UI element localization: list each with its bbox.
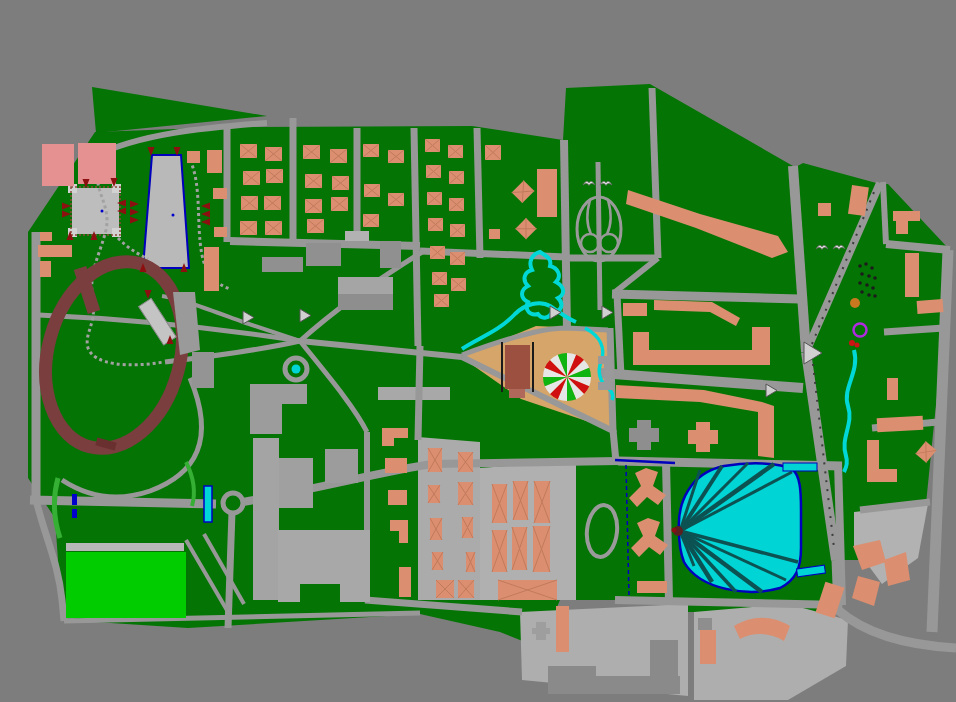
- villa: [399, 567, 411, 597]
- canal-bridge: [204, 486, 212, 522]
- institute-building: [325, 449, 358, 483]
- villa: [388, 490, 407, 505]
- house: [448, 145, 463, 158]
- court-dot: [101, 210, 104, 213]
- apartment-block: [877, 416, 924, 432]
- sports-ground: [143, 155, 189, 268]
- pink-hall: [78, 143, 116, 184]
- tree-dot: [865, 283, 869, 287]
- apartment-block: [893, 211, 920, 221]
- apartment-block: [917, 299, 944, 314]
- bleachers: [66, 543, 184, 551]
- tree-dot: [860, 290, 864, 294]
- shed: [207, 150, 222, 173]
- street: [477, 128, 480, 258]
- tree-dot: [873, 294, 877, 298]
- shed: [187, 151, 200, 163]
- court-dot: [172, 214, 175, 217]
- barracks: [492, 484, 507, 523]
- school-building: [262, 257, 303, 272]
- canal-segment: [783, 463, 817, 471]
- shed: [40, 232, 52, 241]
- school-building: [306, 243, 341, 266]
- house: [451, 278, 466, 291]
- house: [364, 184, 380, 197]
- apartment-block: [867, 469, 897, 482]
- house: [303, 145, 320, 159]
- map-canvas[interactable]: [0, 0, 956, 702]
- apartment-block: [896, 220, 908, 234]
- apartment-slab: [556, 606, 569, 652]
- stage-building: [505, 345, 530, 389]
- shed: [213, 188, 227, 199]
- pond-vertex: [672, 528, 677, 533]
- house: [265, 147, 282, 161]
- house: [428, 485, 440, 503]
- house: [427, 192, 442, 205]
- shed: [818, 203, 831, 216]
- paved-area: [378, 387, 450, 400]
- house: [450, 252, 465, 265]
- road: [666, 461, 669, 601]
- deco-red: [849, 340, 855, 346]
- house: [466, 552, 475, 572]
- apartment-slab: [537, 169, 557, 217]
- house: [307, 219, 324, 233]
- shed: [214, 227, 227, 237]
- apartment-slab: [700, 630, 716, 664]
- water-gate: [72, 509, 77, 518]
- gray-building: [192, 352, 214, 388]
- tree-dot: [871, 286, 875, 290]
- road: [615, 600, 842, 605]
- house: [363, 214, 379, 227]
- deco-red: [855, 343, 860, 348]
- house: [243, 171, 260, 185]
- house: [425, 139, 440, 152]
- house: [388, 150, 404, 163]
- water-gate: [72, 494, 77, 505]
- map-viewport[interactable]: [0, 0, 956, 702]
- road: [30, 500, 216, 504]
- house: [432, 272, 447, 285]
- house: [449, 198, 464, 211]
- street: [617, 294, 621, 376]
- house: [266, 169, 283, 183]
- house: [330, 149, 347, 163]
- house: [331, 197, 348, 211]
- kiosk-structure: [598, 356, 612, 364]
- stage-step: [509, 389, 525, 398]
- shed: [38, 245, 72, 257]
- tree-dot: [860, 272, 864, 276]
- tree-dot: [864, 262, 868, 266]
- house: [432, 552, 443, 570]
- pink-hall: [42, 144, 74, 186]
- house: [462, 517, 473, 538]
- barracks: [512, 527, 527, 570]
- tree-dot: [870, 266, 874, 270]
- street: [883, 182, 886, 244]
- apartment-slab: [637, 581, 667, 593]
- school-building: [338, 294, 393, 310]
- house: [305, 174, 322, 188]
- house: [240, 221, 257, 235]
- apartment-slab: [887, 378, 898, 400]
- barracks: [513, 481, 528, 520]
- plaza-building: [698, 618, 712, 630]
- road: [613, 430, 616, 462]
- plaza-building: [650, 640, 678, 676]
- house: [450, 224, 465, 237]
- house: [485, 145, 501, 160]
- street: [884, 328, 944, 332]
- sports-field: [66, 552, 186, 618]
- house: [363, 144, 379, 157]
- house: [436, 580, 454, 598]
- house: [449, 171, 464, 184]
- shed: [40, 261, 51, 277]
- street: [612, 294, 800, 299]
- house: [264, 196, 281, 210]
- sports-court: [72, 188, 119, 234]
- apartment-slab: [204, 247, 219, 291]
- deco-orange: [850, 298, 860, 308]
- roundabout: [223, 493, 243, 513]
- school-building: [338, 277, 393, 294]
- house: [240, 144, 257, 158]
- house: [434, 294, 449, 307]
- tower-cluster: [852, 576, 880, 606]
- school-building: [345, 231, 369, 241]
- school-building: [380, 241, 401, 268]
- villa: [385, 458, 407, 473]
- barracks: [533, 526, 550, 572]
- house: [458, 482, 473, 505]
- barracks: [492, 530, 507, 572]
- fountain: [292, 365, 301, 374]
- street: [564, 140, 567, 330]
- house: [458, 580, 474, 598]
- barracks: [534, 481, 550, 523]
- institute-building: [279, 458, 313, 508]
- apartment-slab: [905, 253, 919, 297]
- apartment-block: [623, 303, 647, 316]
- plaza: [694, 604, 848, 700]
- house: [430, 518, 442, 540]
- house: [426, 165, 441, 178]
- plaza-building: [532, 628, 550, 634]
- kiosk-structure: [598, 382, 612, 390]
- house: [332, 176, 349, 190]
- house: [430, 246, 445, 259]
- house: [265, 221, 282, 235]
- tree-dot: [867, 274, 871, 278]
- house: [458, 452, 473, 472]
- street: [414, 128, 418, 346]
- barracks: [498, 580, 557, 600]
- shed: [489, 229, 500, 239]
- house: [388, 193, 404, 206]
- house: [428, 218, 443, 231]
- house: [428, 448, 442, 472]
- tree-dot: [858, 264, 862, 268]
- street: [418, 346, 420, 440]
- tree-dot: [867, 293, 871, 297]
- institute-building: [253, 438, 279, 600]
- kiosk-structure: [604, 364, 614, 382]
- house: [305, 199, 322, 213]
- tree-dot: [873, 276, 877, 280]
- house: [241, 196, 258, 210]
- tree-dot: [858, 281, 862, 285]
